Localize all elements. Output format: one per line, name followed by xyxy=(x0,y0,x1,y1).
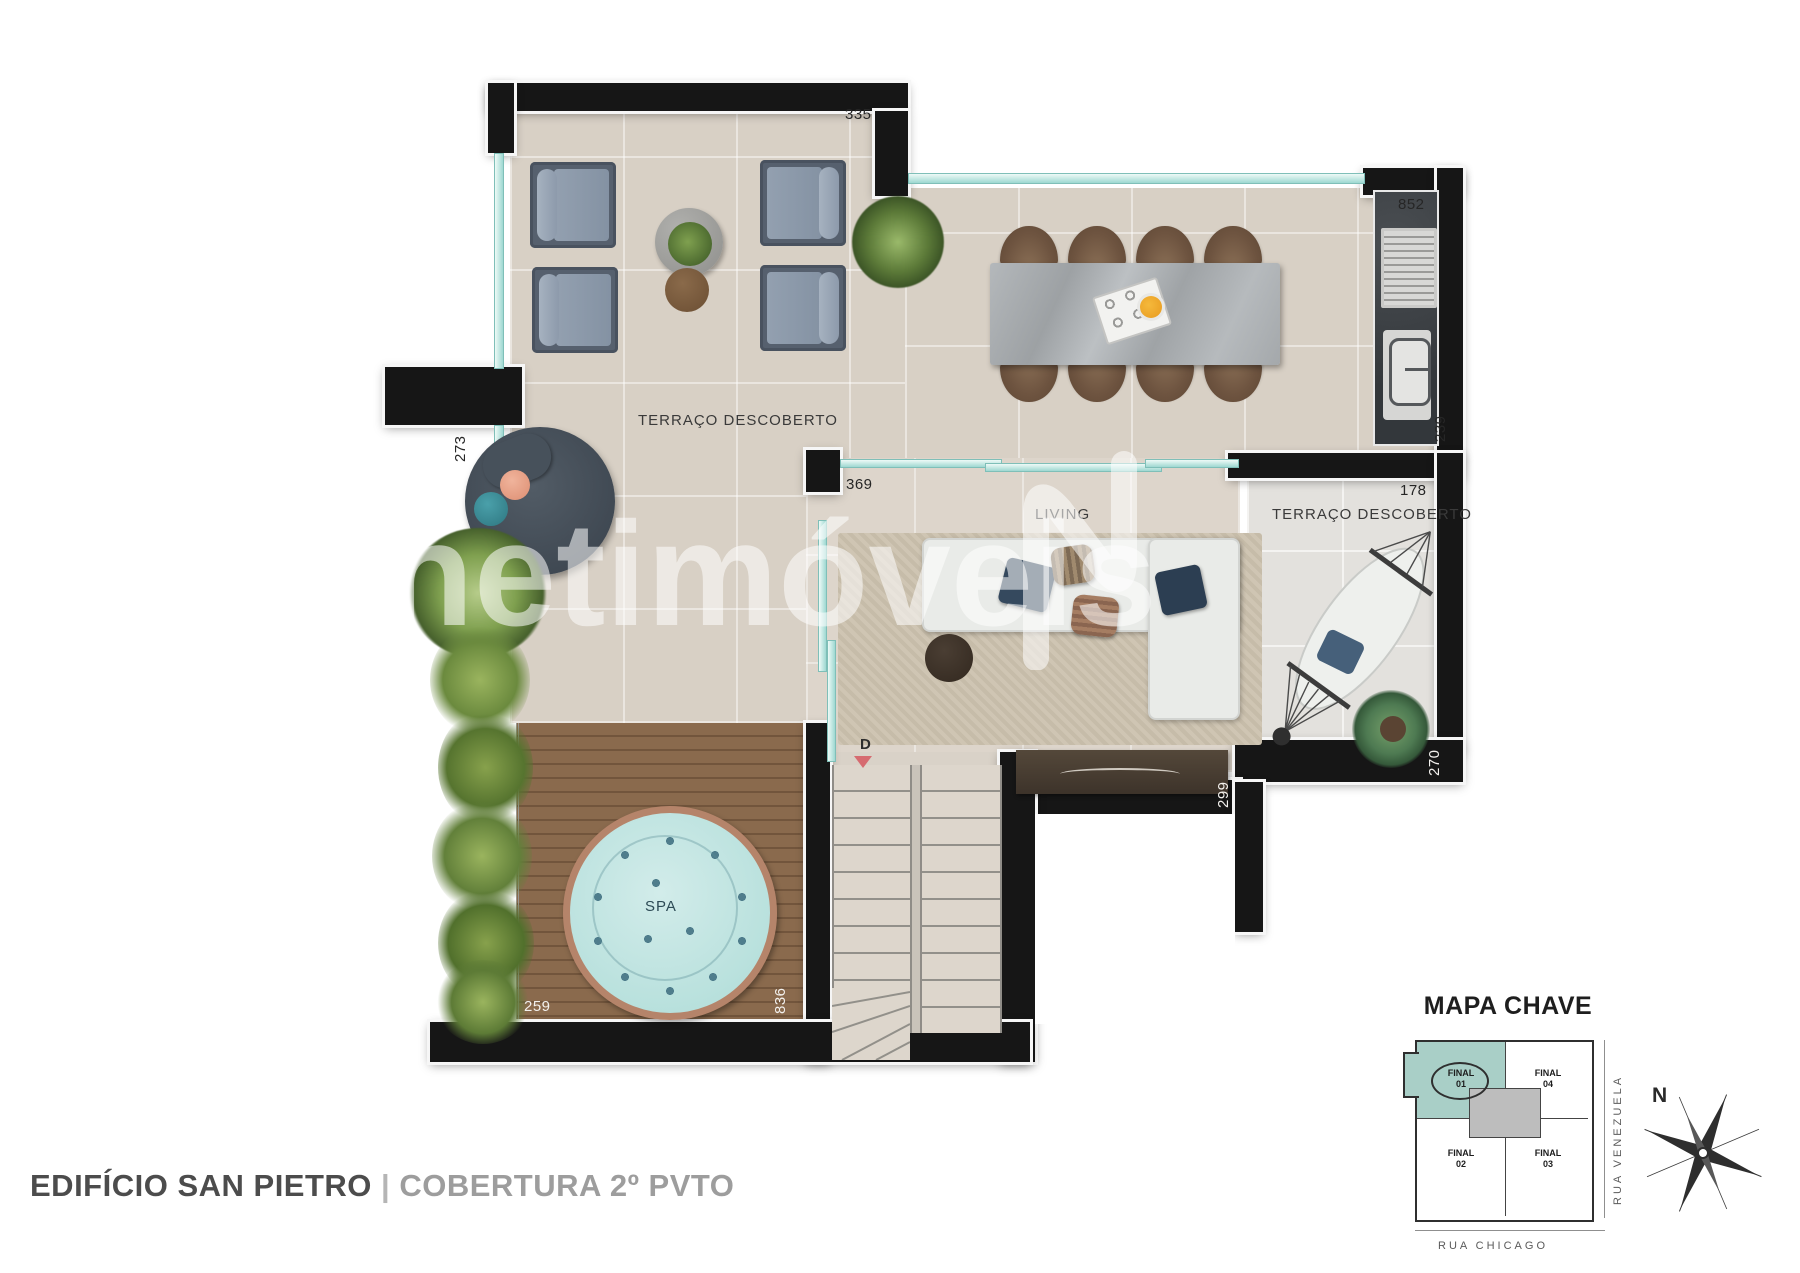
stair-stringer xyxy=(910,765,922,1033)
table-plant-icon xyxy=(668,222,712,266)
sofa-pillow-navy-2 xyxy=(1154,564,1208,617)
shrub-icon xyxy=(436,960,530,1044)
console-decor xyxy=(1060,768,1180,780)
glass-rail-balcony xyxy=(908,173,1365,184)
pan-icon xyxy=(1140,296,1162,318)
stair-down-arrow-icon xyxy=(854,756,872,768)
footer-unit-name: COBERTURA 2º PVTO xyxy=(399,1168,734,1203)
wall-topleft-corner xyxy=(488,83,514,153)
dim-console-wall: 299 xyxy=(1215,781,1232,808)
wall-void-right xyxy=(1235,782,1263,932)
coffee-table-round xyxy=(925,634,973,682)
wall-pillar-left xyxy=(385,367,522,425)
floorplan-page: D SPA TERRAÇO DESCOBERTO LIVING T xyxy=(0,0,1800,1273)
dim-living-door: 369 xyxy=(846,476,873,493)
dim-top-wall: 335 xyxy=(845,106,872,123)
room-label-living: LIVING xyxy=(1035,506,1090,523)
keymap-unit-04: FINAL 04 xyxy=(1508,1068,1588,1090)
stair-flight-left xyxy=(832,765,914,990)
sink-basin xyxy=(1389,338,1431,406)
wall-kitchen-bottom xyxy=(1228,453,1463,478)
footer-title: EDIFÍCIO SAN PIETRO | COBERTURA 2º PVTO xyxy=(30,1168,734,1204)
dim-kitchen-top: 852 xyxy=(1398,196,1425,213)
keymap-title: MAPA CHAVE xyxy=(1418,992,1598,1021)
side-table-round xyxy=(665,268,709,312)
palm-plant-icon xyxy=(852,196,944,288)
dim-spa-bottom: 259 xyxy=(524,998,551,1015)
glass-living-panel-1 xyxy=(840,459,1002,468)
stair-direction-label: D xyxy=(860,736,871,753)
grill-icon xyxy=(1381,228,1437,308)
street-label-bottom: RUA CHICAGO xyxy=(1438,1240,1548,1252)
footer-separator: | xyxy=(381,1168,390,1203)
keymap-unit01-highlight-bump xyxy=(1403,1052,1419,1098)
sink-faucet xyxy=(1405,368,1429,371)
keymap-unit-01: FINAL 01 xyxy=(1421,1068,1501,1090)
sofa-pillow-brown xyxy=(1070,594,1120,639)
keymap-unit-02: FINAL 02 xyxy=(1421,1148,1501,1170)
spa-label: SPA xyxy=(645,898,677,915)
keymap-unit-03: FINAL 03 xyxy=(1508,1148,1588,1170)
sofa-pillow-pattern xyxy=(1050,543,1097,586)
street-line-right xyxy=(1604,1040,1605,1218)
room-label-upper-terrace: TERRAÇO DESCOBERTO xyxy=(638,412,838,429)
wall-stair-right xyxy=(1000,752,1035,1062)
lounge-armchair xyxy=(530,162,616,248)
wall-stair-left xyxy=(806,723,830,1062)
dim-right-terrace-top: 178 xyxy=(1400,482,1427,499)
lounge-armchair xyxy=(760,265,846,351)
dim-spa-side: 836 xyxy=(772,987,789,1014)
keymap-diagram: FINAL 01 FINAL 04 FINAL 02 FINAL 03 xyxy=(1403,1040,1613,1220)
footer-building-name: EDIFÍCIO SAN PIETRO xyxy=(30,1168,372,1203)
glass-living-west-2 xyxy=(827,640,836,762)
keymap-core xyxy=(1469,1088,1541,1138)
wall-top-step xyxy=(875,111,908,196)
glass-rail-left-upper xyxy=(494,153,504,369)
dim-left-pillar: 273 xyxy=(452,435,469,462)
compass-rose-icon xyxy=(1638,1088,1768,1218)
street-label-right: RUA VENEZUELA xyxy=(1612,1075,1624,1205)
street-line-bottom xyxy=(1415,1230,1605,1231)
dim-kitchen-counter: 239 xyxy=(1432,415,1449,442)
glass-living-west-1 xyxy=(818,520,827,672)
room-label-right-terrace: TERRAÇO DESCOBERTO xyxy=(1272,506,1472,523)
glass-living-panel-3 xyxy=(1145,459,1239,468)
void-open-below xyxy=(1035,814,1235,1024)
wall-living-door-post xyxy=(806,450,840,492)
stair-winder xyxy=(832,988,910,1060)
plant-pot xyxy=(1380,716,1406,742)
daybed-pillow-teal xyxy=(474,492,508,526)
dim-right-terrace-bottom: 270 xyxy=(1426,749,1443,776)
daybed-pillow-salmon xyxy=(500,470,530,500)
lounge-armchair xyxy=(532,267,618,353)
glass-living-panel-2 xyxy=(985,463,1162,472)
stair-flight-right xyxy=(918,765,1002,1033)
lounge-armchair xyxy=(760,160,846,246)
